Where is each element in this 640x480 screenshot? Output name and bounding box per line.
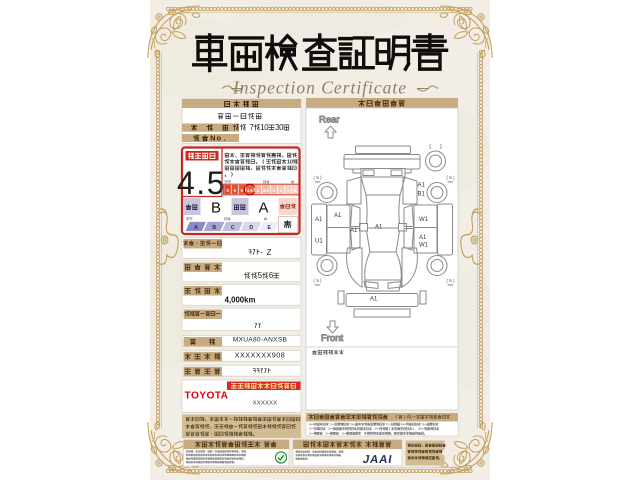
svg-text:5: 5 <box>258 271 263 280</box>
svg-text:mm: mm <box>448 283 454 287</box>
svg-text:Z: Z <box>267 248 272 257</box>
svg-text:7: 7 <box>249 123 253 132</box>
svg-text:S: S <box>226 188 229 193</box>
svg-text:Front: Front <box>321 333 344 344</box>
svg-text:0: 0 <box>290 159 293 165</box>
svg-text:XXXXXX: XXXXXX <box>253 400 278 406</box>
svg-text:4,000km: 4,000km <box>225 296 256 305</box>
svg-text:A: A <box>194 225 198 231</box>
svg-text:A1: A1 <box>315 217 323 223</box>
svg-text:4.5: 4.5 <box>247 188 253 193</box>
svg-text:Rear: Rear <box>319 115 340 126</box>
svg-text:Inspection Certificate: Inspection Certificate <box>232 78 407 98</box>
svg-text:A1: A1 <box>370 297 378 303</box>
svg-text:N: N <box>210 134 215 143</box>
svg-text:6: 6 <box>269 271 274 280</box>
svg-text:U1: U1 <box>315 239 323 245</box>
svg-text:C: C <box>231 225 235 231</box>
svg-text:A: A <box>258 200 268 217</box>
svg-text:0: 0 <box>279 123 284 132</box>
svg-text:B1: B1 <box>418 192 426 198</box>
svg-text:E: E <box>268 225 272 231</box>
svg-text:o: o <box>217 134 222 143</box>
svg-text:mm: mm <box>315 283 321 287</box>
svg-text:4.5: 4.5 <box>177 165 226 201</box>
svg-text:.: . <box>224 134 226 143</box>
svg-text:R: R <box>294 188 297 193</box>
svg-text:XXXXXXX908: XXXXXXX908 <box>235 350 286 359</box>
svg-text:B: B <box>212 225 216 231</box>
svg-text:B: B <box>211 200 221 217</box>
svg-text:W1: W1 <box>419 217 429 223</box>
svg-text:A1: A1 <box>334 213 342 219</box>
svg-text:mm: mm <box>448 180 454 184</box>
svg-text:0: 0 <box>264 123 269 132</box>
svg-text:A1: A1 <box>418 183 426 189</box>
svg-text:-: - <box>260 248 263 257</box>
svg-text:TOYOTA: TOYOTA <box>185 390 229 401</box>
svg-text:D: D <box>249 225 253 231</box>
svg-text:W1: W1 <box>419 243 429 249</box>
svg-text:A1: A1 <box>419 235 427 241</box>
svg-text:A1: A1 <box>350 228 358 234</box>
svg-text:3.5: 3.5 <box>263 188 269 193</box>
svg-text:1: 1 <box>409 415 412 421</box>
svg-text:A1: A1 <box>375 225 383 231</box>
svg-text:JAAI: JAAI <box>362 454 393 466</box>
svg-text:MXUA80-ANXSB: MXUA80-ANXSB <box>233 337 288 344</box>
svg-text:mm: mm <box>315 180 321 184</box>
